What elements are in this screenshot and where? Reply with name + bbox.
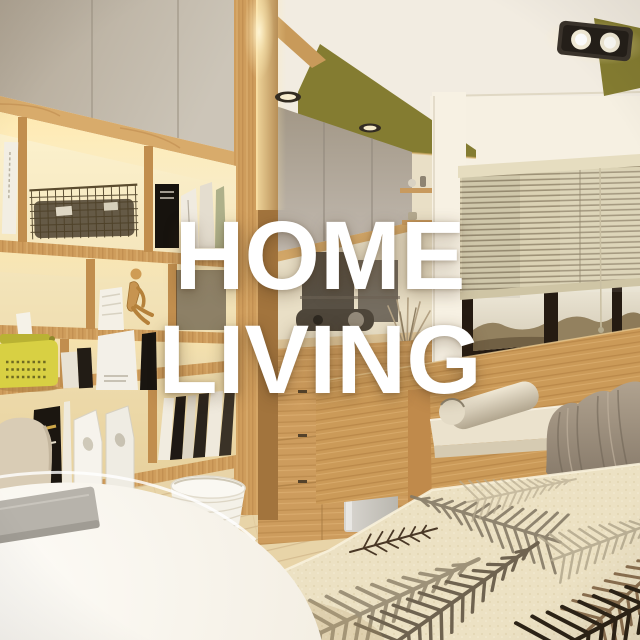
title-line2: LIVING: [0, 308, 640, 412]
title-overlay: HOME LIVING: [0, 204, 640, 412]
title-line1: HOME: [0, 204, 640, 308]
home-living-banner[interactable]: HOME LIVING: [0, 0, 640, 640]
